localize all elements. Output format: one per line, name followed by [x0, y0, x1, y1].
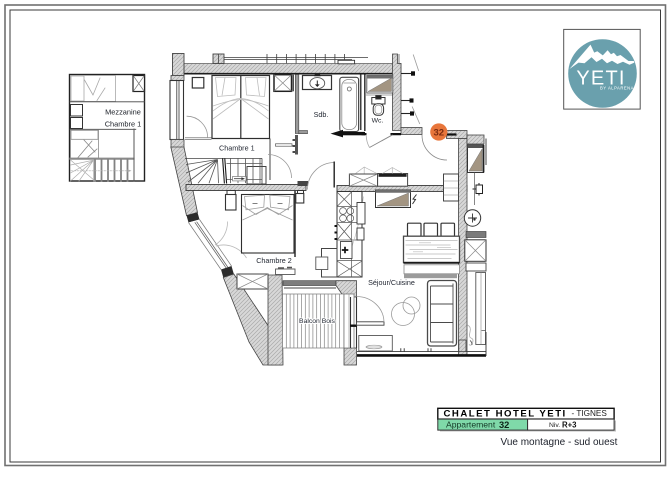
svg-text:32: 32: [434, 128, 445, 139]
svg-text:Mezzanine: Mezzanine: [105, 108, 141, 117]
svg-text:Appartement: Appartement: [446, 420, 496, 430]
svg-text:32: 32: [499, 420, 509, 430]
svg-text:Vue montagne - sud ouest: Vue montagne - sud ouest: [501, 437, 618, 448]
svg-text:Chambre 1: Chambre 1: [219, 144, 255, 153]
svg-text:- TIGNES: - TIGNES: [572, 409, 608, 418]
svg-text:Chambre 2: Chambre 2: [256, 256, 292, 265]
svg-text:CHALET HOTEL YETI: CHALET HOTEL YETI: [444, 409, 567, 420]
svg-text:Séjour/Cuisine: Séjour/Cuisine: [368, 278, 415, 287]
svg-text:BY ALPARENA: BY ALPARENA: [600, 86, 634, 91]
svg-text:R+3: R+3: [562, 420, 577, 429]
svg-text:Balcon Bois: Balcon Bois: [299, 318, 335, 325]
svg-text:Niv.: Niv.: [549, 422, 560, 429]
svg-text:Chambre 1: Chambre 1: [105, 120, 142, 129]
svg-text:Wc.: Wc.: [372, 118, 384, 125]
svg-text:Sdb.: Sdb.: [314, 110, 329, 119]
